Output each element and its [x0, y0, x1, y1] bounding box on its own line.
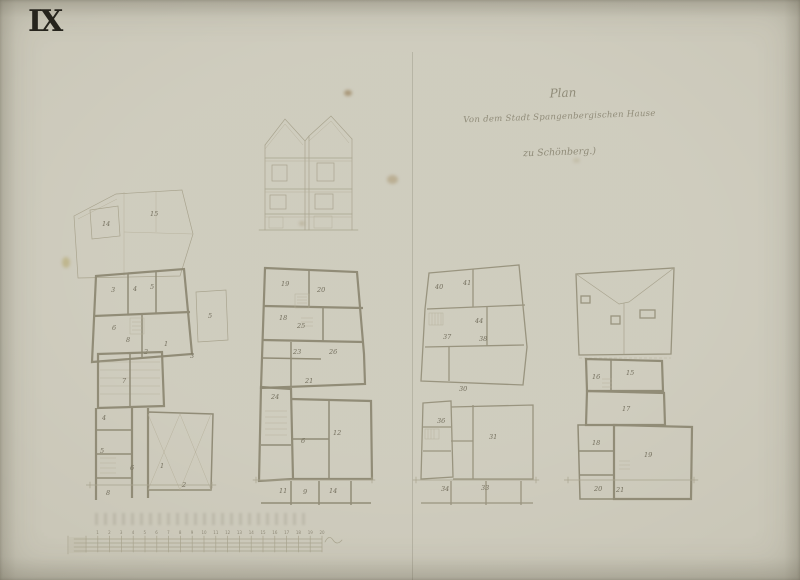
room-number: 25 — [296, 322, 305, 330]
foxing-stain — [387, 175, 398, 184]
title-line-2: Von dem Stadt Spangenbergischen Hause — [452, 108, 667, 125]
cross-section-drawing — [253, 103, 365, 235]
section-windows — [269, 163, 334, 228]
tick-label: 19 — [308, 530, 314, 535]
room-number: 23 — [292, 348, 301, 356]
tick-label: 12 — [225, 530, 231, 535]
room-number: 1 — [164, 340, 168, 348]
section-baseline — [564, 477, 698, 483]
room-number: 44 — [474, 317, 483, 325]
room-number: 18 — [279, 314, 287, 322]
title-line-1: Plan — [518, 84, 608, 101]
first-floor-plan-drawing: 19 20 18 25 23 26 21 — [251, 262, 373, 392]
room-number: 19 — [281, 280, 289, 288]
room-number: 40 — [434, 283, 443, 291]
tick-label: 13 — [237, 530, 243, 535]
title-line-3: zu Schönberg.) — [502, 145, 617, 160]
tick-label: 6 — [155, 530, 158, 535]
room-number: 19 — [644, 451, 652, 459]
second-floor-south-drawing: 30 36 31 34 33 — [411, 381, 543, 509]
room-number: 15 — [626, 369, 634, 377]
tick-label: 18 — [296, 530, 302, 535]
tick-label: 11 — [213, 530, 219, 535]
room-number: 6 — [301, 437, 305, 445]
room-number: 11 — [279, 487, 287, 495]
tick-label: 15 — [261, 530, 267, 535]
room-number: 15 — [150, 210, 158, 218]
tick-label: 10 — [202, 530, 208, 535]
scale-tick-labels: 1 2 3 4 5 6 7 8 9 10 11 12 13 14 15 16 1… — [96, 530, 325, 535]
roof-plan-drawing — [566, 260, 688, 362]
room-number: 24 — [270, 393, 279, 401]
room-number: 5 — [150, 283, 154, 291]
first-floor-walls — [261, 268, 365, 388]
attic-plan-drawing: 16 15 17 18 19 20 21 — [564, 353, 701, 511]
section-roof — [265, 116, 352, 149]
tick-label: 5 — [144, 530, 147, 535]
scale-end-flourish — [325, 537, 342, 543]
tick-label: 7 — [167, 530, 170, 535]
scale-bar: 1 2 3 4 5 6 7 8 9 10 11 12 13 14 15 16 1… — [60, 526, 345, 562]
room-number: 8 — [126, 336, 130, 344]
roof-plan-outline — [576, 268, 674, 358]
tick-label: 4 — [132, 530, 135, 535]
room-number: 1 — [160, 462, 164, 470]
room-number: 41 — [462, 279, 471, 287]
room-number: 33 — [481, 484, 489, 492]
room-number: 36 — [437, 417, 445, 425]
room-number: 21 — [615, 486, 624, 494]
foxing-stain — [573, 158, 580, 163]
room-number: 8 — [106, 489, 110, 497]
room-number: 17 — [622, 405, 631, 413]
room-number: 9 — [303, 488, 307, 496]
room-number: 20 — [593, 485, 602, 493]
tick-label: 20 — [320, 530, 326, 535]
scale-bar-lines — [68, 536, 342, 554]
first-floor-south-walls — [259, 387, 372, 505]
first-floor-south-drawing: 24 6 12 11 9 14 — [251, 383, 378, 510]
tick-label: 1 — [96, 530, 99, 535]
room-number: 3 — [111, 286, 115, 294]
room-number: 14 — [102, 220, 110, 228]
second-floor-plan-drawing: 40 41 44 37 38 — [411, 261, 538, 389]
room-number: 30 — [459, 385, 467, 393]
tick-label: 2 — [108, 530, 111, 535]
room-number: 37 — [443, 333, 452, 341]
tick-label: 9 — [191, 530, 194, 535]
tick-label: 8 — [179, 530, 182, 535]
room-number: 12 — [333, 429, 341, 437]
room-number: 5 — [100, 447, 104, 455]
room-number: 18 — [592, 439, 600, 447]
room-number: 38 — [479, 335, 487, 343]
room-number: 20 — [316, 286, 325, 294]
room-number: 6 — [112, 324, 116, 332]
room-number: 4 — [132, 285, 137, 293]
room-number: 14 — [329, 487, 337, 495]
tick-label: 3 — [120, 530, 123, 535]
scanned-plan-sheet: IX Plan Von dem Stadt Spangenbergischen … — [0, 0, 800, 580]
room-number: 3 — [190, 352, 194, 360]
room-number: 6 — [130, 464, 134, 472]
room-number: 4 — [101, 414, 106, 422]
room-number: 31 — [489, 433, 497, 441]
sheet-number: IX — [28, 4, 61, 39]
ground-plan-south-drawing: 3 7 4 5 6 1 8 2 — [86, 348, 218, 510]
south-plan-walls — [96, 352, 213, 500]
room-number: 5 — [208, 312, 212, 320]
room-number: 26 — [328, 348, 337, 356]
room-number: 2 — [181, 481, 186, 489]
tick-label: 17 — [284, 530, 290, 535]
ink-bleed-through — [95, 513, 310, 525]
room-number: 16 — [592, 373, 600, 381]
section-walls-floors — [259, 136, 358, 230]
tick-label: 14 — [249, 530, 255, 535]
tick-label: 16 — [272, 530, 278, 535]
section-baseline — [253, 477, 375, 483]
foxing-stain — [344, 90, 352, 96]
room-number: 34 — [441, 485, 449, 493]
